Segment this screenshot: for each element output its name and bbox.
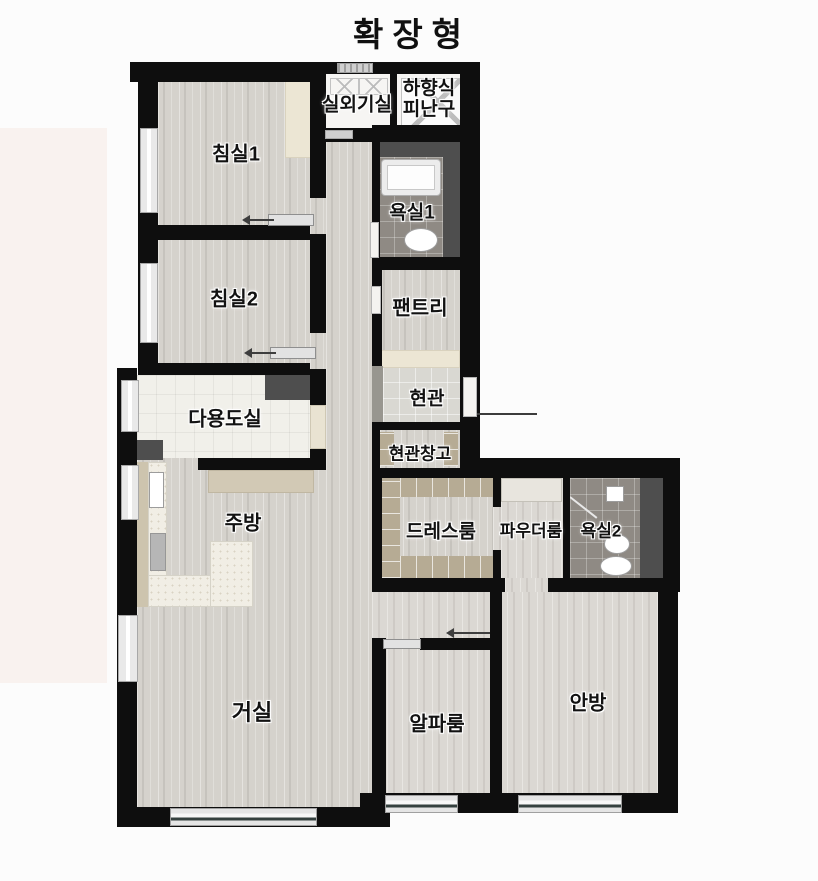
label-bedroom1: 침실1 xyxy=(212,138,260,167)
label-outdoor-unit: 실외기실 xyxy=(322,90,392,117)
wall xyxy=(198,458,326,470)
window-bedroom2 xyxy=(140,263,158,343)
window-kitchen xyxy=(121,465,139,520)
label-kitchen: 주방 xyxy=(225,507,262,536)
kitchen-upper-counter xyxy=(208,470,314,493)
wall xyxy=(490,590,502,795)
bath1-tub xyxy=(381,159,441,196)
label-bedroom2: 침실2 xyxy=(210,283,258,312)
floor-plan-page: 확장형 xyxy=(0,0,818,881)
label-escape-hatch: 하향식 피난구 xyxy=(403,79,455,121)
wall xyxy=(563,478,570,578)
powder-counter xyxy=(501,478,562,502)
wall xyxy=(372,257,462,270)
kitchen-sink xyxy=(149,472,164,508)
background-band xyxy=(0,128,107,683)
plan-title: 확장형 xyxy=(353,8,471,56)
alpha-door-arrow-icon xyxy=(448,632,490,634)
wall xyxy=(130,62,326,82)
bedroom2-door-arrow-icon xyxy=(246,352,276,354)
outdoor-unit-door-sill xyxy=(325,130,353,139)
label-living: 거실 xyxy=(232,695,272,727)
dress-closet-bottom xyxy=(400,556,493,578)
alpha-sliding-door xyxy=(383,639,421,649)
corridor-floor xyxy=(326,130,372,458)
label-entry: 현관 xyxy=(410,384,445,411)
window-living-side xyxy=(118,615,138,682)
wall xyxy=(372,475,382,578)
dress-closet-left xyxy=(382,475,400,578)
room-master-alpha-floor xyxy=(372,592,658,793)
window-utility xyxy=(121,380,139,432)
bath1-toilet-icon xyxy=(404,228,438,252)
entry-door-swing-line xyxy=(477,413,537,415)
bedroom1-door-arrow-icon xyxy=(244,219,274,221)
wall xyxy=(372,125,480,142)
wall xyxy=(117,368,137,827)
label-escape-hatch-line2: 피난구 xyxy=(403,100,455,121)
window-bedroom1 xyxy=(140,128,158,213)
label-dress: 드레스룸 xyxy=(406,517,476,544)
bath1-door xyxy=(370,222,379,258)
wall xyxy=(663,458,680,592)
dress-closet-top xyxy=(400,475,493,497)
wall xyxy=(372,430,380,468)
label-escape-hatch-line1: 하향식 xyxy=(403,79,455,100)
doorway-master-suite xyxy=(505,578,548,592)
bath2-shelf xyxy=(606,486,624,502)
bath2-toilet-icon xyxy=(600,556,632,576)
label-bath1: 욕실1 xyxy=(389,198,435,225)
label-utility: 다용도실 xyxy=(188,403,262,432)
wall xyxy=(372,422,463,430)
bedroom2-sliding-door xyxy=(270,347,316,359)
wall xyxy=(138,225,326,240)
pantry-door xyxy=(371,286,381,314)
outdoor-unit-vent xyxy=(337,63,373,73)
kitchen-counter-corner xyxy=(210,541,253,607)
window-alpha-bottom xyxy=(385,795,458,813)
wall xyxy=(372,468,463,478)
label-bath2: 욕실2 xyxy=(581,517,622,542)
bedroom1-sliding-door xyxy=(268,214,314,226)
wall xyxy=(138,363,326,375)
label-master: 안방 xyxy=(570,687,607,716)
entry-duct xyxy=(372,366,383,424)
window-living-bottom xyxy=(170,808,317,826)
kitchen-appliance-dark xyxy=(133,440,163,460)
wall xyxy=(372,638,386,808)
label-alpha: 알파룸 xyxy=(409,708,464,737)
wall xyxy=(372,347,382,366)
entry-front-door xyxy=(463,377,477,417)
label-powder: 파우더룸 xyxy=(500,517,563,542)
label-pantry: 팬트리 xyxy=(392,292,447,321)
bath2-side-panel xyxy=(640,475,663,578)
window-master-bottom xyxy=(518,795,622,813)
kitchen-stove xyxy=(150,533,166,571)
wall xyxy=(658,592,678,813)
label-entry-storage: 현관창고 xyxy=(389,440,452,465)
utility-door xyxy=(310,405,326,449)
entry-shoe-cabinet xyxy=(378,350,460,368)
